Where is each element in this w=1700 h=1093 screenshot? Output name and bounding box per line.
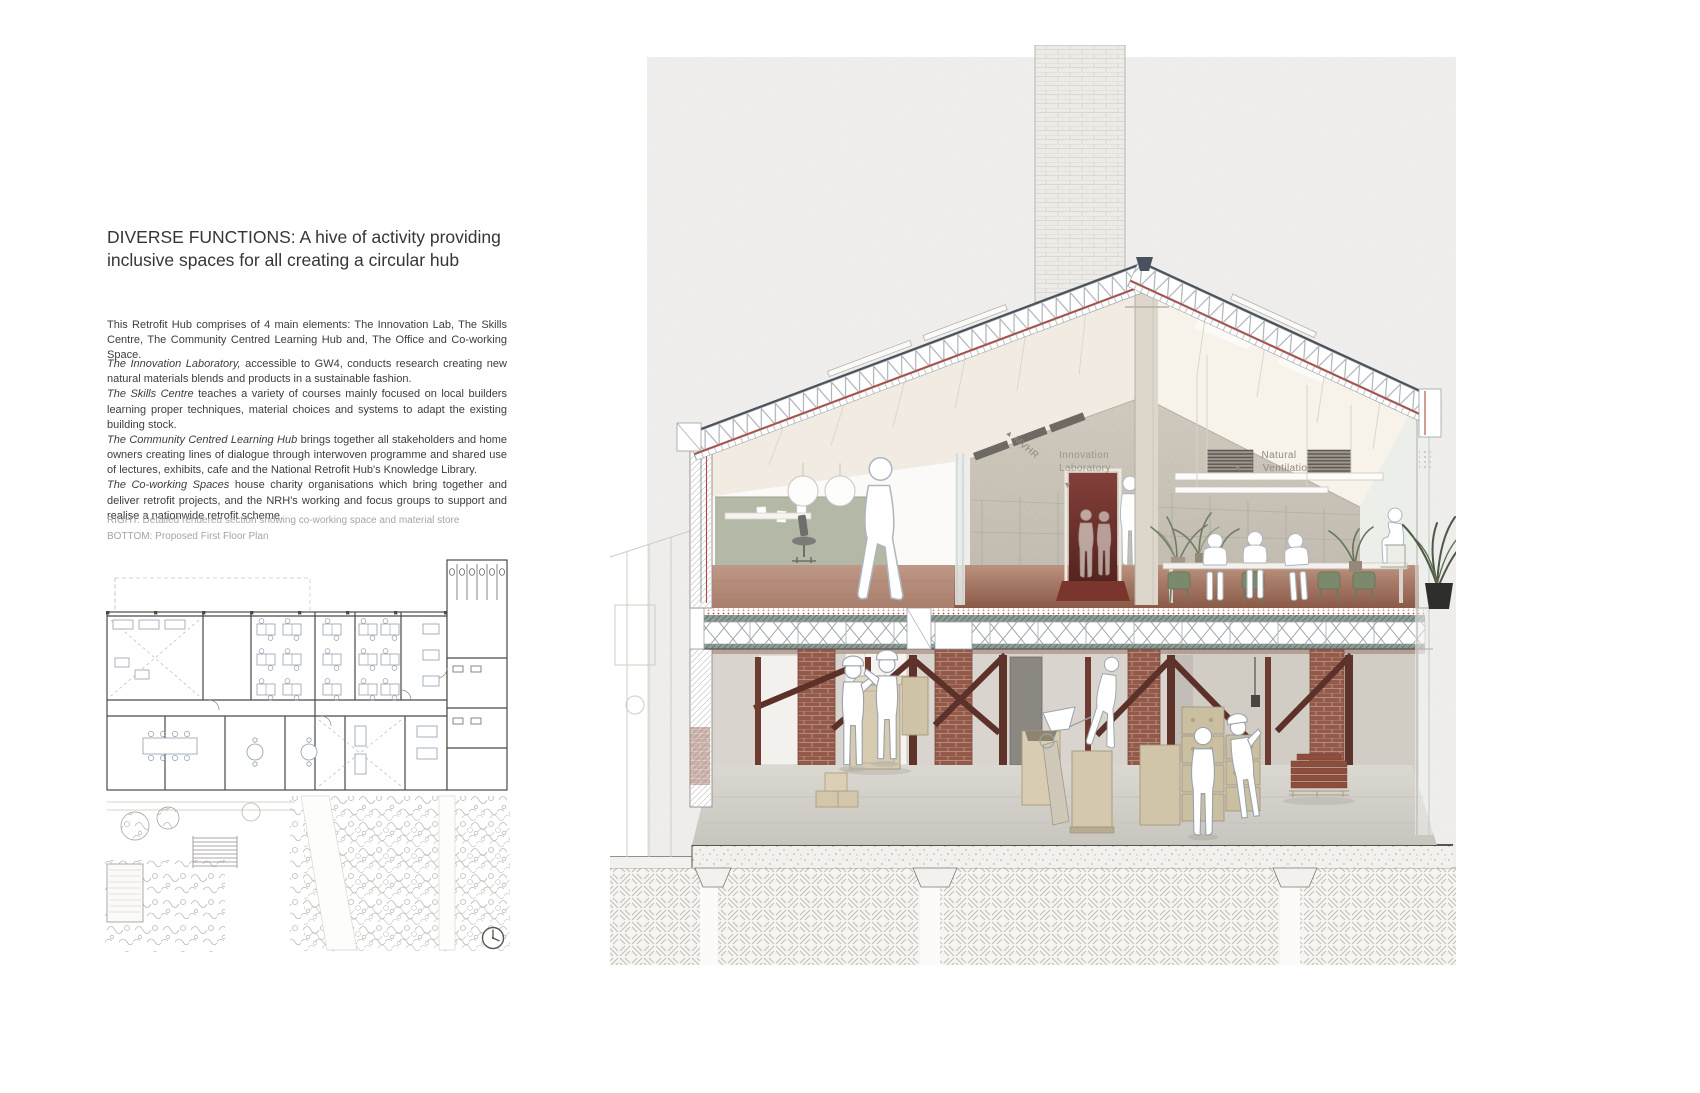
store-window [758, 655, 800, 765]
left-arrow-icon: ◄ [1232, 463, 1241, 473]
function-item: The Community Centred Learning Hub bring… [107, 433, 507, 479]
label-innovation-line1: Innovation [1059, 450, 1109, 461]
section-rendering: ▲ MVHR Innovation Laboratory ▼ Natural ◄… [607, 45, 1456, 965]
captions: RIGHT: Detailed rendered section showing… [107, 513, 517, 544]
label-innovation-line2: Laboratory [1059, 463, 1111, 474]
function-item: The Skills Centre teaches a variety of c… [107, 387, 507, 433]
lab-tank [825, 476, 855, 506]
down-arrow-icon: ▼ [1063, 480, 1072, 490]
section-drawing: ▲ MVHR Innovation Laboratory ▼ Natural ◄… [607, 45, 1456, 965]
function-item: The Innovation Laboratory, accessible to… [107, 357, 507, 387]
curtain-wall-glazing [1415, 397, 1433, 835]
north-arrow-icon [483, 928, 504, 949]
right-eave-detail [1419, 389, 1441, 437]
material-store [690, 649, 1437, 845]
label-ventilation-line1: Natural [1261, 450, 1296, 461]
glass-partition [955, 453, 965, 605]
floor-slab [690, 608, 1425, 649]
left-eave-detail [677, 423, 701, 451]
ventilation-grille [1307, 450, 1351, 475]
first-floor-plan [105, 558, 510, 963]
foundation-ground [610, 845, 1456, 965]
floor-plan-drawing [105, 558, 510, 963]
caption-bottom: BOTTOM: Proposed First Floor Plan [107, 529, 517, 545]
caption-right: RIGHT: Detailed rendered section showing… [107, 513, 517, 529]
plan-landscape [105, 796, 510, 956]
function-list: The Innovation Laboratory, accessible to… [107, 357, 507, 524]
chimney [1035, 45, 1125, 303]
page-title: DIVERSE FUNCTIONS: A hive of activity pr… [107, 226, 505, 272]
lab-tank [788, 476, 818, 506]
label-ventilation-line2: Ventilation [1263, 463, 1314, 474]
ventilation-grille [1207, 450, 1253, 475]
plan-deck [107, 864, 143, 922]
